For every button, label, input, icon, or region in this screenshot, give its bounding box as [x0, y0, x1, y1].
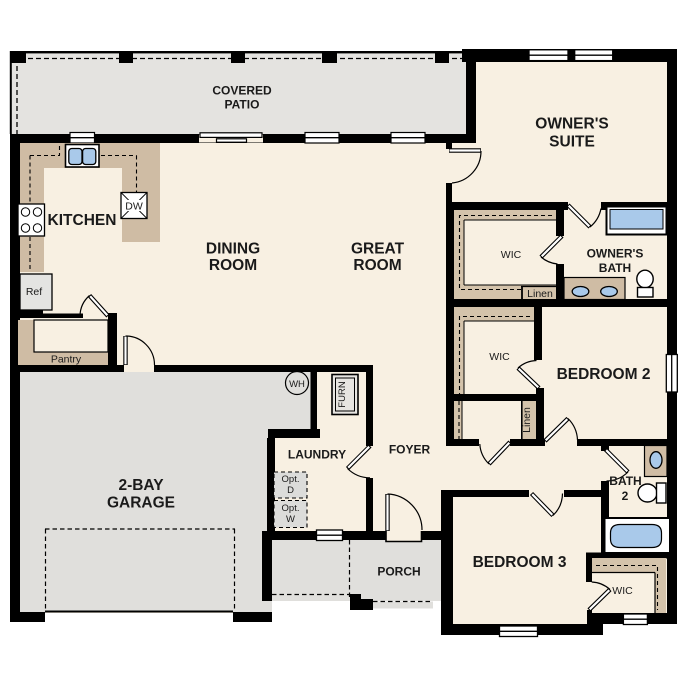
- svg-text:Ref: Ref: [26, 286, 42, 298]
- svg-text:W: W: [286, 514, 295, 525]
- svg-text:PORCH: PORCH: [377, 565, 420, 579]
- svg-text:OWNER'S: OWNER'S: [587, 247, 644, 261]
- svg-text:GARAGE: GARAGE: [107, 495, 175, 512]
- svg-text:WH: WH: [289, 379, 305, 390]
- svg-text:Opt.: Opt.: [282, 503, 300, 514]
- svg-text:KITCHEN: KITCHEN: [48, 212, 117, 229]
- svg-text:WIC: WIC: [489, 351, 510, 363]
- svg-text:ROOM: ROOM: [209, 257, 257, 274]
- svg-text:SUITE: SUITE: [549, 134, 595, 151]
- svg-text:BEDROOM 3: BEDROOM 3: [473, 554, 567, 571]
- svg-text:WIC: WIC: [501, 249, 522, 261]
- svg-text:BATH: BATH: [599, 261, 631, 275]
- svg-text:FOYER: FOYER: [389, 443, 431, 457]
- svg-text:D: D: [287, 485, 294, 496]
- svg-text:PATIO: PATIO: [225, 98, 260, 112]
- svg-text:OWNER'S: OWNER'S: [535, 116, 608, 133]
- svg-text:GREAT: GREAT: [351, 241, 405, 258]
- svg-text:Opt.: Opt.: [282, 474, 300, 485]
- svg-text:Pantry: Pantry: [51, 354, 82, 366]
- svg-text:2-BAY: 2-BAY: [118, 477, 164, 494]
- svg-text:COVERED: COVERED: [212, 84, 272, 98]
- svg-text:BATH: BATH: [609, 474, 641, 488]
- svg-text:DW: DW: [125, 201, 143, 213]
- svg-text:Linen: Linen: [527, 288, 553, 300]
- svg-text:Linen: Linen: [521, 407, 533, 433]
- svg-text:LAUNDRY: LAUNDRY: [288, 448, 346, 462]
- svg-text:BEDROOM 2: BEDROOM 2: [557, 366, 651, 383]
- svg-text:ROOM: ROOM: [353, 257, 401, 274]
- svg-text:2: 2: [622, 489, 629, 503]
- svg-text:DINING: DINING: [206, 241, 260, 258]
- svg-text:WIC: WIC: [612, 585, 633, 597]
- svg-text:FURN: FURN: [337, 381, 348, 408]
